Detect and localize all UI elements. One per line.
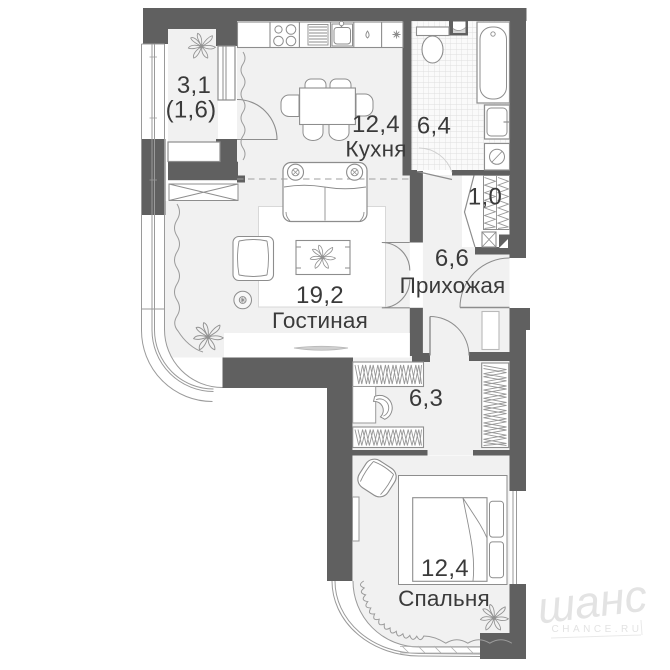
svg-text:Кухня: Кухня <box>345 137 406 162</box>
svg-text:1,0: 1,0 <box>468 184 502 211</box>
svg-text:Прихожая: Прихожая <box>400 273 506 298</box>
svg-text:Спальня: Спальня <box>398 586 490 611</box>
svg-text:6,3: 6,3 <box>409 385 443 412</box>
svg-text:Гостиная: Гостиная <box>272 308 368 333</box>
svg-text:12,4: 12,4 <box>352 111 400 138</box>
svg-text:6,6: 6,6 <box>435 245 469 272</box>
svg-text:CHANCE.RU: CHANCE.RU <box>552 624 643 635</box>
svg-text:(1,6): (1,6) <box>166 97 217 124</box>
svg-text:3,1: 3,1 <box>177 72 211 99</box>
svg-text:6,4: 6,4 <box>417 113 451 140</box>
svg-text:12,4: 12,4 <box>421 555 469 582</box>
svg-text:19,2: 19,2 <box>296 282 344 309</box>
